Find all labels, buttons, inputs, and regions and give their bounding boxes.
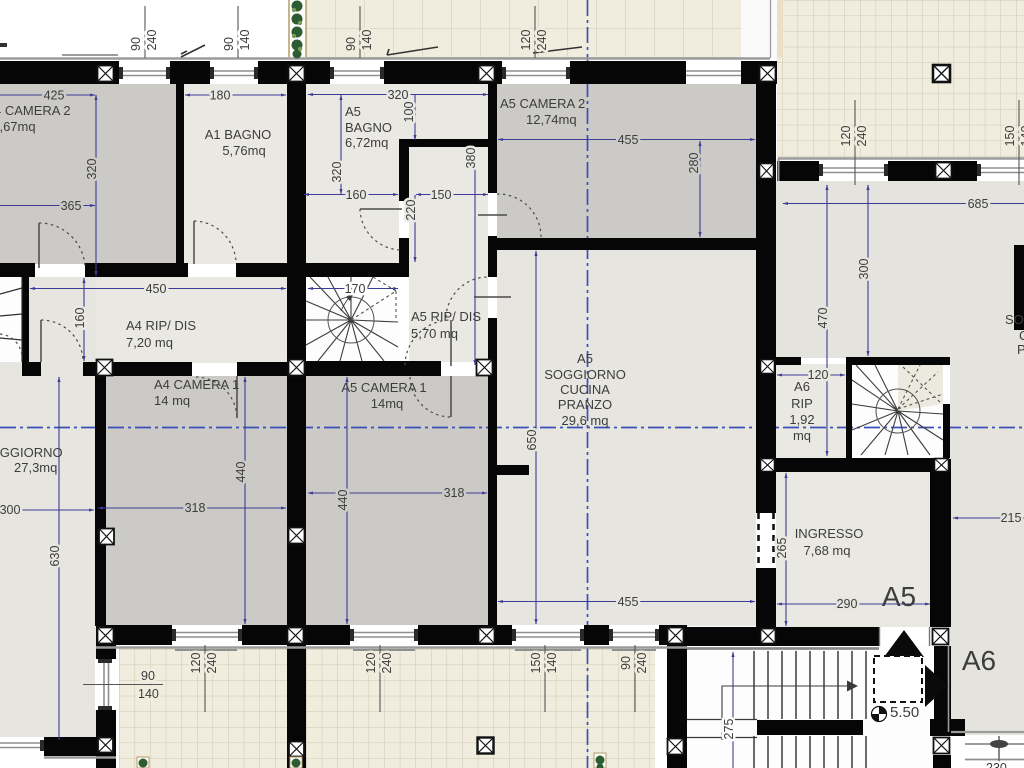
- svg-text:1,92: 1,92: [789, 412, 814, 427]
- svg-text:140: 140: [238, 30, 252, 51]
- svg-text:240: 240: [855, 126, 869, 147]
- svg-text:140: 140: [360, 30, 374, 51]
- svg-text:A4 RIP/ DIS: A4 RIP/ DIS: [126, 318, 196, 333]
- svg-text:INGRESSO: INGRESSO: [795, 526, 864, 541]
- svg-text:120: 120: [808, 368, 829, 382]
- svg-text:SOGGIORNO: SOGGIORNO: [0, 445, 63, 460]
- svg-text:SOGGIORNO: SOGGIORNO: [544, 367, 626, 382]
- svg-text:A5 CAMERA 2: A5 CAMERA 2: [500, 96, 585, 111]
- svg-text:318: 318: [444, 486, 465, 500]
- svg-text:120: 120: [364, 653, 378, 674]
- svg-text:160: 160: [346, 188, 367, 202]
- svg-text:320: 320: [330, 162, 344, 183]
- svg-text:100: 100: [402, 102, 416, 123]
- svg-text:90: 90: [129, 37, 143, 51]
- svg-text:120: 120: [839, 126, 853, 147]
- svg-text:RIP: RIP: [791, 396, 813, 411]
- svg-text:5,76mq: 5,76mq: [222, 143, 265, 158]
- svg-text:CUCINA: CUCINA: [560, 382, 610, 397]
- svg-text:150: 150: [1003, 126, 1017, 147]
- svg-text:120: 120: [519, 30, 533, 51]
- svg-text:240: 240: [380, 653, 394, 674]
- svg-text:A6: A6: [794, 379, 810, 394]
- svg-text:630: 630: [48, 546, 62, 567]
- svg-text:320: 320: [388, 88, 409, 102]
- svg-text:240: 240: [205, 653, 219, 674]
- svg-text:140: 140: [1019, 126, 1024, 147]
- svg-text:140: 140: [138, 687, 159, 701]
- svg-text:265: 265: [775, 538, 789, 559]
- svg-text:300: 300: [0, 503, 20, 517]
- svg-text:380: 380: [464, 148, 478, 169]
- svg-text:P: P: [1017, 342, 1024, 357]
- svg-text:90: 90: [141, 669, 155, 683]
- svg-text:425: 425: [44, 89, 65, 103]
- svg-text:mq: mq: [793, 428, 811, 443]
- svg-text:215: 215: [1001, 511, 1022, 525]
- svg-text:C: C: [1019, 328, 1024, 343]
- svg-text:15,67mq: 15,67mq: [0, 119, 36, 134]
- svg-text:240: 240: [535, 30, 549, 51]
- svg-text:4 CAMERA 2: 4 CAMERA 2: [0, 103, 71, 118]
- svg-text:320: 320: [85, 159, 99, 180]
- svg-text:290: 290: [837, 597, 858, 611]
- svg-text:A5: A5: [345, 104, 361, 119]
- svg-text:220: 220: [404, 200, 418, 221]
- svg-text:A6: A6: [962, 645, 996, 676]
- svg-text:685: 685: [968, 197, 989, 211]
- svg-text:440: 440: [336, 490, 350, 511]
- svg-text:470: 470: [816, 308, 830, 329]
- svg-text:120: 120: [189, 653, 203, 674]
- svg-text:90: 90: [344, 37, 358, 51]
- svg-text:90: 90: [619, 656, 633, 670]
- svg-text:A5: A5: [577, 351, 593, 366]
- svg-text:150: 150: [529, 653, 543, 674]
- svg-text:160: 160: [73, 308, 87, 329]
- svg-text:7,68 mq: 7,68 mq: [804, 543, 851, 558]
- svg-text:318: 318: [185, 501, 206, 515]
- svg-text:SO: SO: [1005, 312, 1024, 327]
- svg-text:240: 240: [145, 30, 159, 51]
- svg-text:14 mq: 14 mq: [154, 393, 190, 408]
- svg-text:240: 240: [635, 653, 649, 674]
- svg-text:450: 450: [146, 282, 167, 296]
- svg-text:PRANZO: PRANZO: [558, 397, 612, 412]
- svg-text:7,20 mq: 7,20 mq: [126, 335, 173, 350]
- svg-text:14mq: 14mq: [371, 396, 404, 411]
- svg-text:BAGNO: BAGNO: [345, 120, 392, 135]
- svg-text:90: 90: [222, 37, 236, 51]
- svg-text:140: 140: [545, 653, 559, 674]
- svg-text:440: 440: [234, 462, 248, 483]
- svg-text:300: 300: [857, 259, 871, 280]
- svg-text:A5 RIP/ DIS: A5 RIP/ DIS: [411, 309, 481, 324]
- svg-text:280: 280: [687, 153, 701, 174]
- svg-text:27,3mq: 27,3mq: [14, 460, 57, 475]
- svg-text:170: 170: [345, 282, 366, 296]
- svg-text:12,74mq: 12,74mq: [526, 112, 577, 127]
- svg-text:150: 150: [431, 188, 452, 202]
- svg-text:230: 230: [986, 761, 1007, 768]
- svg-text:650: 650: [525, 430, 539, 451]
- svg-text:275: 275: [722, 719, 736, 740]
- svg-text:180: 180: [210, 89, 231, 103]
- svg-text:365: 365: [61, 199, 82, 213]
- svg-text:455: 455: [618, 595, 639, 609]
- svg-text:455: 455: [618, 133, 639, 147]
- svg-text:29,6 mq: 29,6 mq: [562, 413, 609, 428]
- svg-text:5.50: 5.50: [890, 704, 919, 721]
- svg-text:A5 CAMERA 1: A5 CAMERA 1: [341, 380, 426, 395]
- svg-text:A5: A5: [882, 581, 916, 612]
- svg-text:5,70 mq: 5,70 mq: [411, 326, 458, 341]
- svg-text:A1 BAGNO: A1 BAGNO: [205, 127, 271, 142]
- svg-text:A4 CAMERA 1: A4 CAMERA 1: [154, 377, 239, 392]
- svg-text:6,72mq: 6,72mq: [345, 135, 388, 150]
